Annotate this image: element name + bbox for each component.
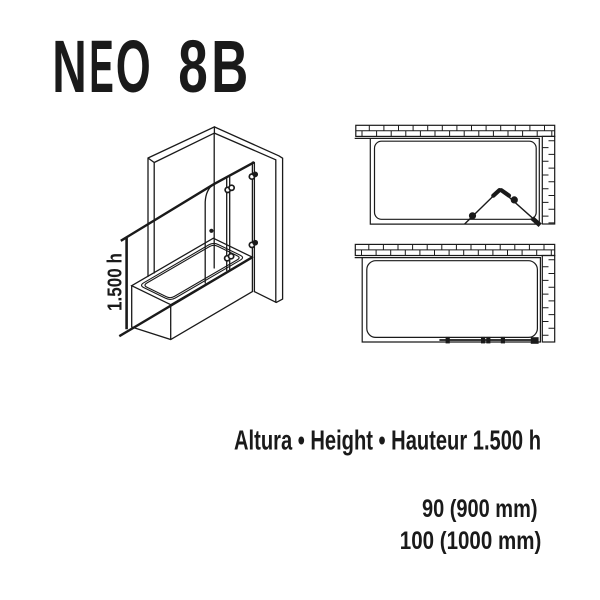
- svg-text:100 (1000 mm): 100 (1000 mm): [400, 527, 542, 555]
- svg-text:B: B: [211, 25, 248, 108]
- svg-text:8: 8: [178, 25, 208, 108]
- svg-text:O: O: [116, 25, 151, 108]
- svg-text:90 (900 mm): 90 (900 mm): [422, 495, 538, 523]
- svg-text:Altura • Height • Hauteur 1.50: Altura • Height • Hauteur 1.500 h: [234, 425, 541, 456]
- svg-text:1.500 h: 1.500 h: [104, 253, 127, 311]
- svg-text:E: E: [89, 25, 114, 108]
- svg-text:N: N: [52, 25, 87, 108]
